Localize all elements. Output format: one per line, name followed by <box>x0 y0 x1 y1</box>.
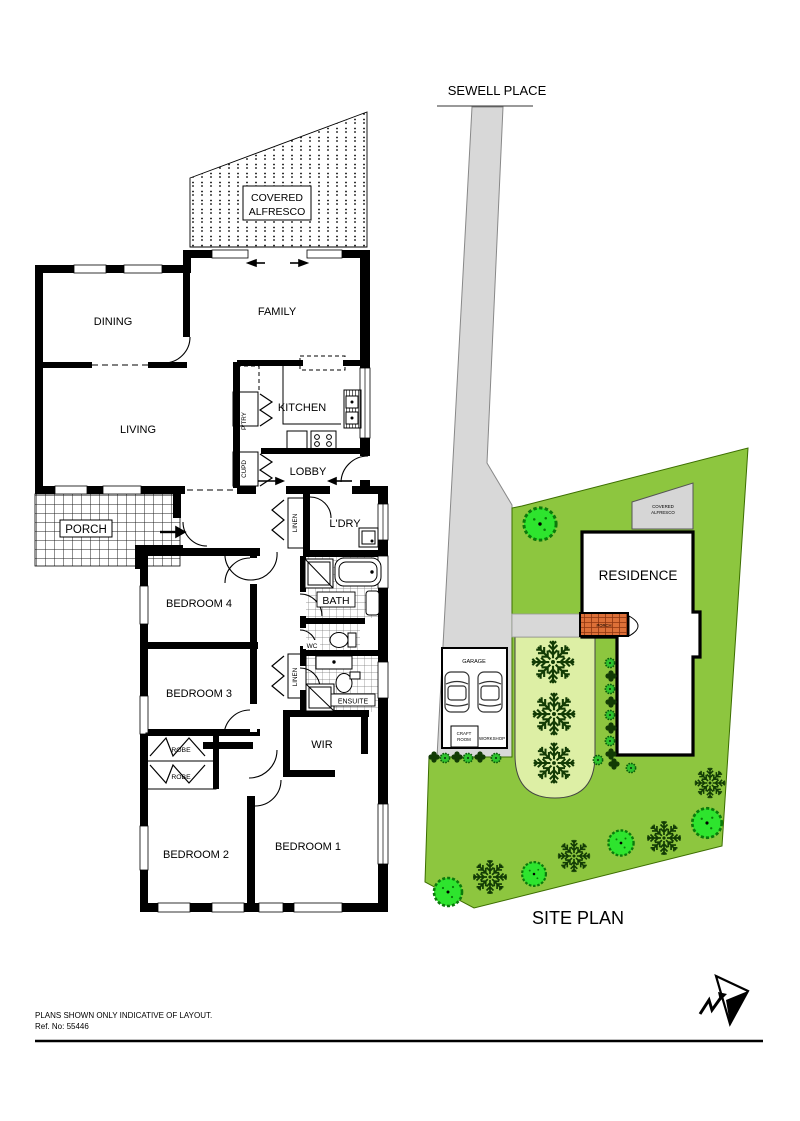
label-cupboard: CUPD <box>241 460 248 478</box>
label-bedroom1: BEDROOM 1 <box>275 841 341 853</box>
dishwasher <box>287 431 307 449</box>
label-bedroom2: BEDROOM 2 <box>163 849 229 861</box>
label-lobby: LOBBY <box>290 466 327 478</box>
label-bedroom3: BEDROOM 3 <box>166 688 232 700</box>
craft-room-label1: CRAFT <box>457 731 472 736</box>
plan-canvas: SEWELL PLACE COVERED ALFRESCO RESIDENCE … <box>0 0 800 1121</box>
site-plan: SEWELL PLACE COVERED ALFRESCO RESIDENCE … <box>425 83 748 928</box>
garage-block: GARAGE CRAFT ROOM WORKSHOP <box>442 648 507 748</box>
craft-room-label2: ROOM <box>457 737 471 742</box>
bath-vanity <box>366 591 379 615</box>
footer-ref-no: Ref. No: 55446 <box>35 1022 89 1031</box>
label-laundry: L'DRY <box>329 518 361 530</box>
label-dining: DINING <box>94 316 133 328</box>
label-pantry: P'TRY <box>241 411 248 430</box>
label-wir: WIR <box>311 739 332 751</box>
site-alfresco-label1: COVERED <box>652 504 674 509</box>
label-living: LIVING <box>120 424 156 436</box>
kitchen-bench <box>283 366 341 424</box>
label-porch: PORCH <box>65 524 107 536</box>
label-robe-top: ROBE <box>171 747 191 754</box>
residence-label: RESIDENCE <box>599 568 678 583</box>
footer-disclaimer: PLANS SHOWN ONLY INDICATIVE OF LAYOUT. <box>35 1011 212 1020</box>
garden-palm <box>532 641 575 684</box>
stove <box>311 431 336 449</box>
label-bath: BATH <box>322 595 349 607</box>
driveway-path <box>512 614 580 637</box>
label-wc: WC <box>307 643 318 650</box>
garage-label: GARAGE <box>462 659 486 665</box>
north-arrow-icon <box>700 976 748 1024</box>
street-name-label: SEWELL PLACE <box>448 83 547 98</box>
floor-plan: COVERED ALFRESCO <box>35 112 388 912</box>
site-alfresco-label2: ALFRESCO <box>651 510 675 515</box>
label-linen-bed: LINEN <box>292 667 299 686</box>
floorplan-page: SEWELL PLACE COVERED ALFRESCO RESIDENCE … <box>0 0 800 1121</box>
wc-toilet <box>330 633 348 648</box>
car-icon <box>478 672 502 712</box>
label-bedroom4: BEDROOM 4 <box>166 598 232 610</box>
label-family: FAMILY <box>258 306 297 318</box>
site-porch-label: PORCH <box>596 623 611 628</box>
site-plan-title: SITE PLAN <box>532 908 624 928</box>
alfresco-area <box>190 112 367 247</box>
label-ensuite: ENSUITE <box>338 699 369 706</box>
alfresco-label1: COVERED <box>251 192 303 204</box>
footer: PLANS SHOWN ONLY INDICATIVE OF LAYOUT. R… <box>35 976 763 1041</box>
alfresco-label2: ALFRESCO <box>249 206 306 218</box>
garden-palm <box>533 693 576 736</box>
label-robe-bottom: ROBE <box>171 774 191 781</box>
label-linen-hall: LINEN <box>292 513 299 532</box>
workshop-label: WORKSHOP <box>479 736 505 741</box>
garden-palm <box>534 743 575 784</box>
car-icon <box>445 672 469 712</box>
label-kitchen: KITCHEN <box>278 402 326 414</box>
